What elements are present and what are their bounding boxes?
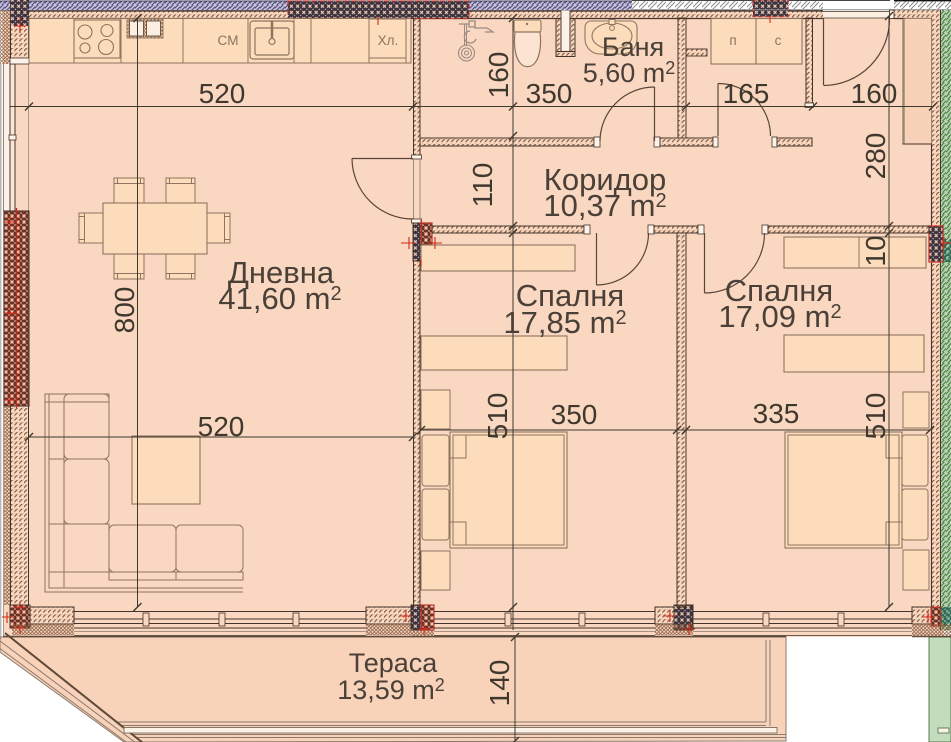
svg-text:520: 520 [198,411,245,442]
svg-text:CM: CM [218,33,239,48]
svg-text:13,59 m2: 13,59 m2 [337,675,445,705]
svg-text:5,60 m2: 5,60 m2 [583,58,676,88]
svg-text:п: п [729,33,736,48]
svg-text:165: 165 [723,78,770,109]
svg-text:160: 160 [483,52,514,99]
svg-text:335: 335 [753,398,800,429]
svg-text:280: 280 [860,133,891,180]
svg-text:510: 510 [860,393,891,440]
svg-text:17,85 m2: 17,85 m2 [503,305,626,340]
svg-text:140: 140 [484,660,515,707]
svg-text:110: 110 [467,163,498,208]
svg-text:с: с [775,33,782,48]
svg-text:Тераса: Тераса [349,648,439,678]
svg-text:520: 520 [199,78,246,109]
svg-text:17,09 m2: 17,09 m2 [718,299,841,334]
svg-text:350: 350 [551,399,598,430]
svg-text:10,37 m2: 10,37 m2 [543,188,666,223]
svg-text:800: 800 [109,287,140,334]
svg-text:10: 10 [860,235,891,266]
svg-text:41,60 m2: 41,60 m2 [218,281,341,316]
svg-text:160: 160 [851,78,898,109]
svg-text:350: 350 [526,78,573,109]
svg-text:Хл.: Хл. [378,33,399,48]
svg-text:510: 510 [482,393,513,440]
